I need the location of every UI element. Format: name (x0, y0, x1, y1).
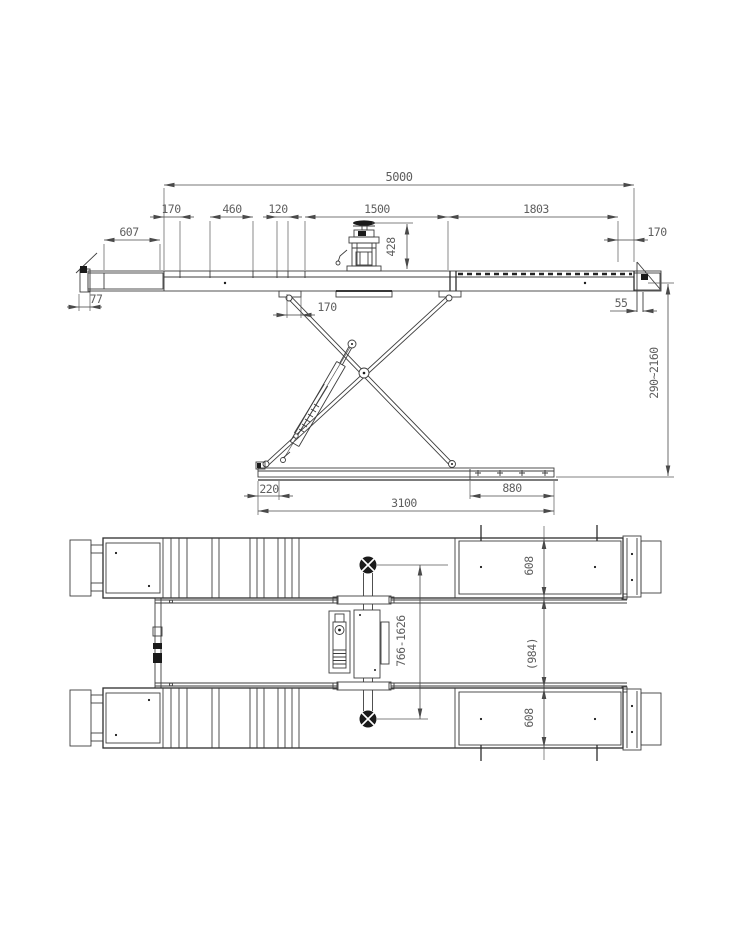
dim-left-flap-77: 77 (90, 292, 103, 306)
bottom-right-ramp (641, 693, 661, 745)
dim-track-gap: (984) (525, 638, 539, 670)
side-elevation-view: 5000 170 460 120 1500 1803 607 (67, 170, 674, 515)
base-frame-plan (153, 594, 627, 692)
dim-left-ramp-607: 607 (119, 225, 139, 239)
top-left-ramp-plate (70, 540, 91, 596)
plan-view: 766-1626 608 (984) 608 (70, 525, 661, 761)
power-unit-plan (329, 611, 350, 673)
upper-right-pivot (446, 295, 452, 301)
dim-seg-1500: 1500 (364, 202, 390, 216)
top-right-end-plate (623, 536, 641, 597)
scissor-arm-outer (288, 296, 454, 467)
dim-base-880: 880 (502, 481, 522, 495)
release-lever (338, 250, 347, 262)
dim-lift-height-range: 290~2160 (647, 347, 661, 399)
bottom-left-ramp-plate (70, 690, 91, 746)
top-right-ramp (641, 541, 661, 593)
base-frame-side (256, 462, 558, 480)
dim-seg-170-left: 170 (161, 202, 181, 216)
dim-right-flap-55: 55 (615, 296, 628, 310)
scissor-mechanism (263, 291, 461, 468)
dim-base-3100: 3100 (391, 496, 417, 510)
technical-drawing-page: 5000 170 460 120 1500 1803 607 (0, 0, 750, 930)
cylinder-base-pivot (281, 458, 286, 463)
scissor-lift-drawing: 5000 170 460 120 1500 1803 607 (0, 0, 750, 930)
dim-seg-120: 120 (268, 202, 288, 216)
dim-runway-width-bottom: 608 (522, 708, 536, 728)
dim-under-platform-170: 170 (317, 300, 337, 314)
scissor-arm-inner (265, 296, 450, 467)
dim-overall-length: 5000 (386, 170, 413, 184)
left-approach-flap (76, 253, 97, 273)
dim-runway-width-top: 608 (522, 556, 536, 576)
dim-seg-1803: 1803 (523, 202, 549, 216)
pump-handle-knob (353, 220, 375, 225)
cylinder-cover (354, 610, 380, 678)
dim-seg-460: 460 (222, 202, 242, 216)
power-unit-side (336, 220, 381, 271)
dim-crossbar-stroke: 766-1626 (394, 615, 408, 667)
dim-right-end-170: 170 (647, 225, 667, 239)
dim-pump-height-428: 428 (384, 237, 398, 257)
bottom-right-end-plate (623, 689, 641, 750)
dim-base-220: 220 (259, 482, 279, 496)
